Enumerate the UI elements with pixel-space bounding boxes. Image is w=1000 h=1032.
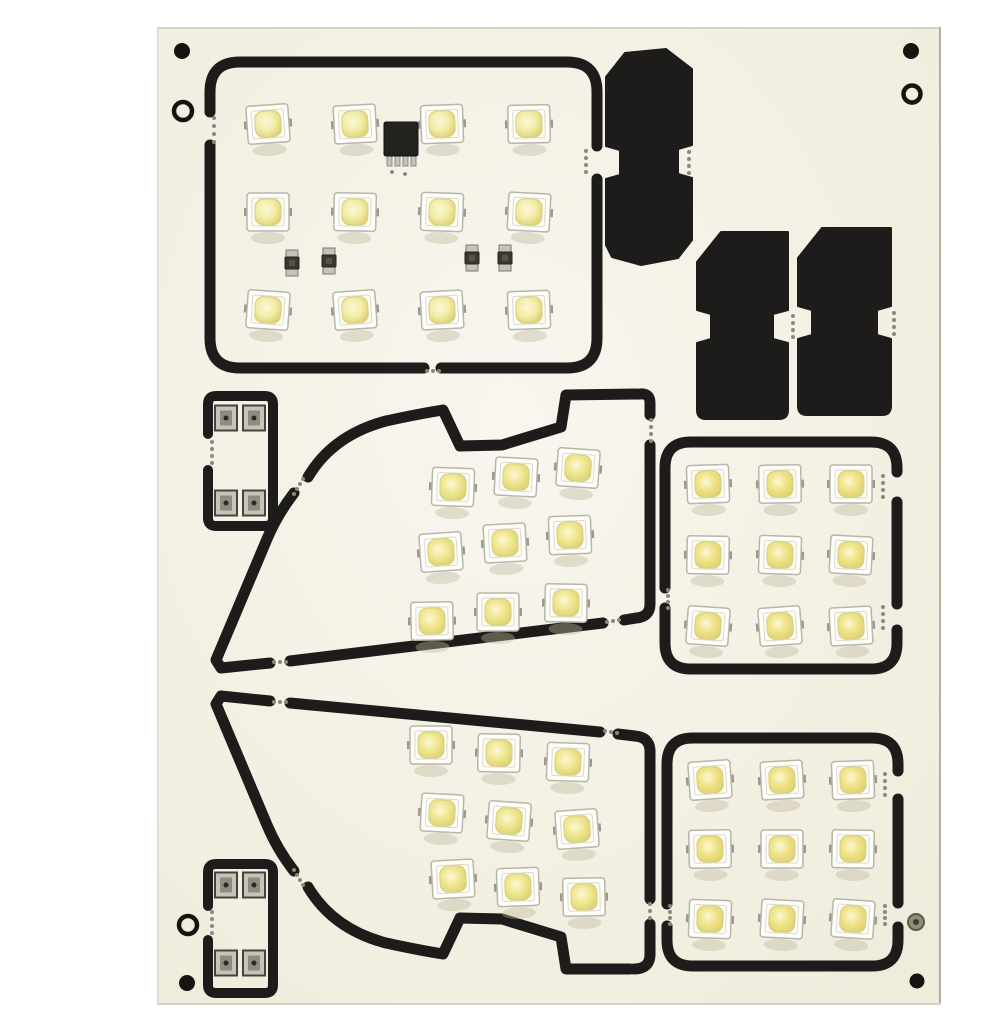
transistor-die	[289, 260, 295, 266]
tab-dot	[292, 492, 296, 496]
tab-dot	[881, 612, 885, 616]
tab-dot	[666, 588, 670, 592]
tab-dot	[687, 164, 691, 168]
tab-dot	[212, 124, 216, 128]
tab-dot	[584, 170, 588, 174]
led-phosphor	[838, 471, 864, 497]
led-phosphor	[564, 454, 592, 482]
tab-dot	[881, 495, 885, 499]
led-phosphor	[553, 590, 579, 616]
pad-center	[224, 416, 229, 421]
blank-shape	[798, 228, 891, 415]
solder-pad	[243, 873, 265, 898]
led-phosphor	[768, 766, 795, 793]
led-phosphor	[571, 884, 597, 910]
tab-dot	[212, 132, 216, 136]
smd-transistor	[322, 248, 336, 274]
tab-dot	[295, 873, 299, 877]
tab-dot	[301, 883, 305, 887]
tab-dot	[791, 321, 795, 325]
pad-center	[252, 961, 257, 966]
led-phosphor	[254, 296, 282, 324]
pad-center	[224, 883, 229, 888]
tab-dot	[212, 140, 216, 144]
tab-dot	[301, 477, 305, 481]
tab-dot	[284, 660, 288, 664]
led-phosphor	[563, 815, 591, 843]
led-phosphor	[428, 799, 455, 826]
tab-dot	[210, 931, 214, 935]
led-phosphor	[694, 612, 722, 640]
tab-dot	[666, 606, 670, 610]
led-phosphor	[695, 542, 721, 568]
rivet-core	[913, 919, 919, 925]
led-phosphor	[419, 608, 445, 634]
solder-pad	[215, 406, 237, 431]
solder-pad	[243, 406, 265, 431]
led-phosphor	[491, 529, 518, 556]
tab-dot	[883, 793, 887, 797]
board-edge-bottom	[158, 1003, 941, 1005]
led-phosphor	[696, 766, 724, 794]
smd-transistor	[498, 245, 512, 271]
ic-speck	[390, 170, 394, 174]
led-phosphor	[840, 836, 866, 862]
tooling-hole	[179, 975, 195, 991]
tab-dot	[881, 488, 885, 492]
tab-dot	[881, 626, 885, 630]
mouse-bite-tab	[272, 700, 288, 704]
tab-dot	[425, 369, 429, 373]
pcb-led-panel-photo	[40, 16, 1000, 1016]
tab-dot	[210, 440, 214, 444]
tab-dot	[883, 772, 887, 776]
tooling-hole	[910, 974, 925, 989]
led-phosphor	[429, 199, 456, 226]
tab-dot	[210, 461, 214, 465]
led-phosphor	[255, 199, 281, 225]
tab-dot	[791, 314, 795, 318]
led-phosphor	[495, 807, 523, 835]
mouse-bite-tab	[425, 369, 441, 373]
module-festoon-adapter-small-2	[798, 228, 891, 415]
tab-dot	[298, 878, 302, 882]
tab-dot	[611, 619, 615, 623]
tab-dot	[584, 163, 588, 167]
module-square-panel-middle	[665, 442, 897, 669]
led-phosphor	[840, 767, 867, 794]
tab-dot	[883, 779, 887, 783]
pad-center	[224, 961, 229, 966]
ic-speck	[403, 172, 407, 176]
pad-center	[252, 883, 257, 888]
led-phosphor	[837, 541, 864, 568]
tab-dot	[687, 150, 691, 154]
tab-dot	[668, 904, 672, 908]
tab-dot	[278, 700, 282, 704]
tab-dot	[210, 910, 214, 914]
tab-dot	[892, 311, 896, 315]
board-edge-top	[158, 27, 941, 29]
tab-dot	[791, 328, 795, 332]
transistor-die	[502, 255, 508, 261]
tab-dot	[668, 910, 672, 914]
transistor-die	[469, 255, 475, 261]
tab-dot	[298, 482, 302, 486]
tab-dot	[648, 909, 652, 913]
mouse-bite-tab	[648, 902, 652, 920]
led-phosphor	[768, 905, 795, 932]
tab-dot	[881, 605, 885, 609]
led-phosphor	[516, 111, 542, 137]
tab-dot	[687, 171, 691, 175]
led-phosphor	[440, 474, 467, 501]
tab-dot	[272, 700, 276, 704]
tab-dot	[892, 332, 896, 336]
smd-transistor	[285, 250, 299, 276]
led-phosphor	[428, 296, 455, 323]
tab-dot	[687, 157, 691, 161]
tab-dot	[210, 924, 214, 928]
led-phosphor	[429, 111, 456, 138]
led-phosphor	[486, 740, 512, 766]
solder-pad	[243, 951, 265, 976]
pcb-board-svg	[40, 16, 1000, 1016]
board-edge-right	[939, 27, 941, 1005]
led-phosphor	[557, 522, 584, 549]
led-phosphor	[839, 905, 867, 933]
tooling-hole	[174, 43, 190, 59]
led-phosphor	[427, 538, 455, 566]
tab-dot	[883, 916, 887, 920]
tab-dot	[649, 432, 653, 436]
solder-pad	[215, 873, 237, 898]
solder-pad	[215, 491, 237, 516]
tab-dot	[883, 922, 887, 926]
pad-center	[252, 416, 257, 421]
led-phosphor	[439, 865, 466, 892]
mouse-bite-tab	[272, 660, 288, 664]
led-phosphor	[766, 612, 794, 640]
tab-dot	[212, 116, 216, 120]
led-phosphor	[767, 542, 794, 569]
solder-pad	[215, 951, 237, 976]
led-phosphor	[555, 749, 582, 776]
led-phosphor	[697, 906, 724, 933]
led-reflection	[834, 504, 868, 516]
tab-dot	[791, 335, 795, 339]
tab-dot	[609, 730, 613, 734]
tab-dot	[272, 660, 276, 664]
led-reflection	[251, 232, 285, 244]
tab-dot	[649, 418, 653, 422]
transistor-die	[326, 258, 332, 264]
led-reflection	[481, 632, 515, 644]
tab-dot	[584, 156, 588, 160]
led-phosphor	[767, 471, 793, 497]
tab-dot	[210, 917, 214, 921]
tab-dot	[649, 439, 653, 443]
led-reflection	[765, 869, 799, 881]
tab-dot	[666, 594, 670, 598]
tab-dot	[892, 318, 896, 322]
led-phosphor	[695, 471, 722, 498]
tab-dot	[881, 619, 885, 623]
led-phosphor	[485, 599, 511, 625]
tab-dot	[666, 600, 670, 604]
led-phosphor	[341, 110, 368, 137]
tab-dot	[883, 786, 887, 790]
tab-dot	[668, 916, 672, 920]
led-phosphor	[837, 612, 864, 639]
led-phosphor	[516, 297, 543, 324]
solder-pad	[243, 491, 265, 516]
led-phosphor	[697, 836, 723, 862]
tab-dot	[284, 700, 288, 704]
pad-center	[252, 501, 257, 506]
tab-dot	[584, 149, 588, 153]
smd-transistor	[465, 245, 479, 271]
tab-dot	[668, 922, 672, 926]
tab-dot	[292, 868, 296, 872]
led-phosphor	[418, 732, 444, 758]
tab-dot	[617, 618, 621, 622]
pad-center	[224, 501, 229, 506]
tab-dot	[210, 447, 214, 451]
tab-dot	[648, 916, 652, 920]
led-phosphor	[342, 199, 368, 225]
tab-dot	[603, 729, 607, 733]
tab-dot	[881, 481, 885, 485]
tab-dot	[605, 620, 609, 624]
tab-dot	[883, 904, 887, 908]
ic-body	[384, 122, 418, 156]
led-phosphor	[341, 296, 369, 324]
tooling-hole	[903, 43, 919, 59]
tab-dot	[881, 474, 885, 478]
led-phosphor	[505, 874, 532, 901]
module-square-panel-bottom	[667, 738, 898, 966]
led-reflection	[414, 765, 448, 777]
led-phosphor	[769, 836, 795, 862]
board-edge-left	[157, 27, 159, 1005]
tab-dot	[649, 425, 653, 429]
tab-dot	[431, 369, 435, 373]
tab-dot	[295, 487, 299, 491]
led-phosphor	[502, 463, 529, 490]
tab-dot	[615, 731, 619, 735]
tab-dot	[648, 902, 652, 906]
rivet	[908, 914, 924, 930]
tab-dot	[210, 454, 214, 458]
tab-dot	[278, 660, 282, 664]
led-phosphor	[254, 110, 282, 138]
led-phosphor	[515, 198, 542, 225]
tab-dot	[883, 910, 887, 914]
tab-dot	[892, 325, 896, 329]
tab-dot	[437, 369, 441, 373]
